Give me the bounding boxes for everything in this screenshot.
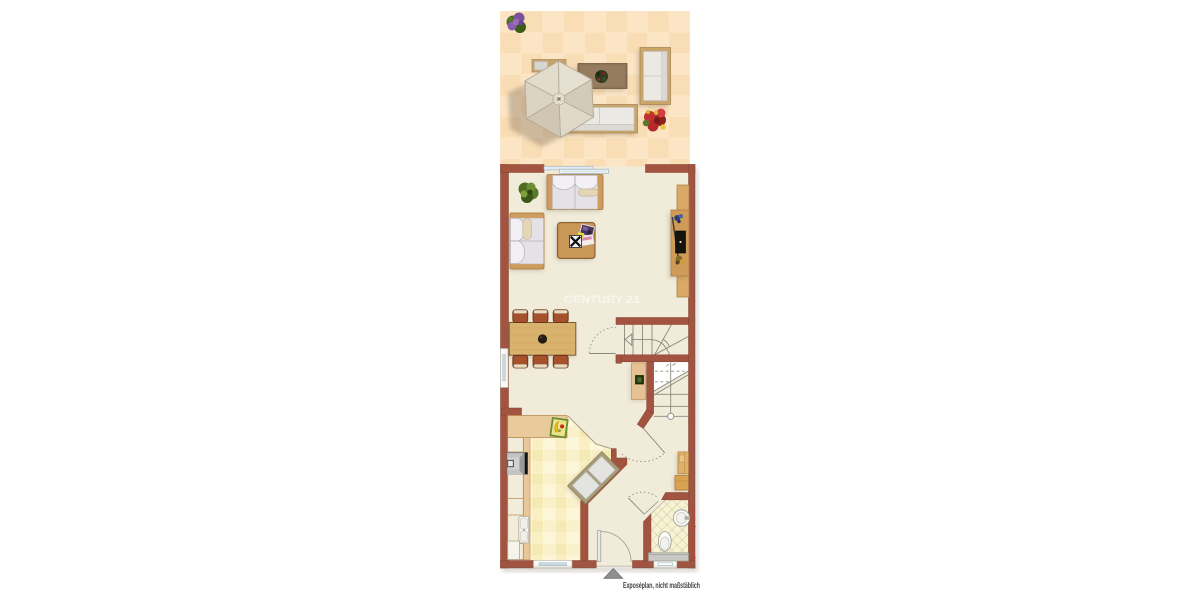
svg-text:Exposéplan, nicht maßstäblich: Exposéplan, nicht maßstäblich [623,581,700,590]
svg-text:CENTURY 21: CENTURY 21 [564,294,640,306]
